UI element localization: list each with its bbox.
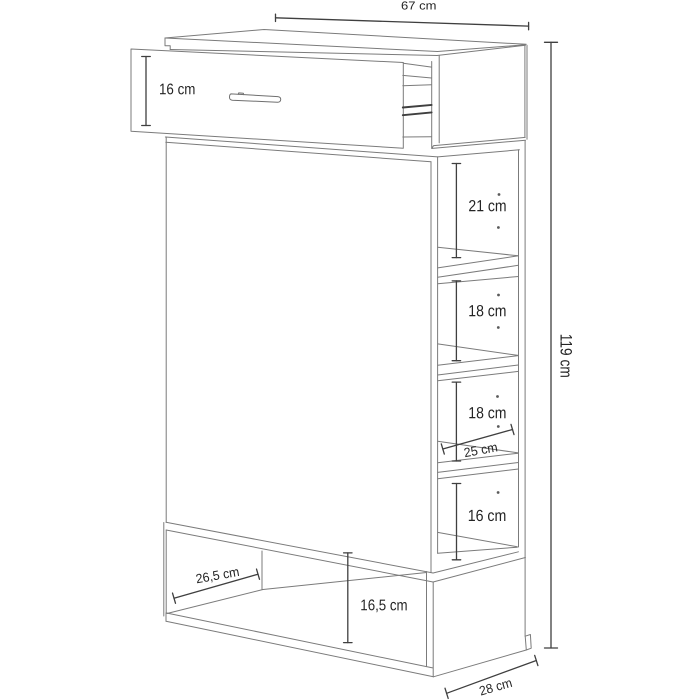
svg-text:28 cm: 28 cm [477, 675, 513, 699]
svg-text:18 cm: 18 cm [468, 404, 506, 422]
svg-text:16 cm: 16 cm [468, 507, 507, 525]
svg-text:18 cm: 18 cm [468, 302, 506, 320]
svg-text:21 cm: 21 cm [468, 197, 506, 215]
svg-text:67 cm: 67 cm [401, 0, 436, 13]
svg-text:16,5 cm: 16,5 cm [360, 597, 407, 614]
svg-text:119 cm: 119 cm [556, 334, 574, 378]
svg-text:26,5 cm: 26,5 cm [195, 564, 241, 586]
svg-text:16 cm: 16 cm [159, 81, 195, 98]
